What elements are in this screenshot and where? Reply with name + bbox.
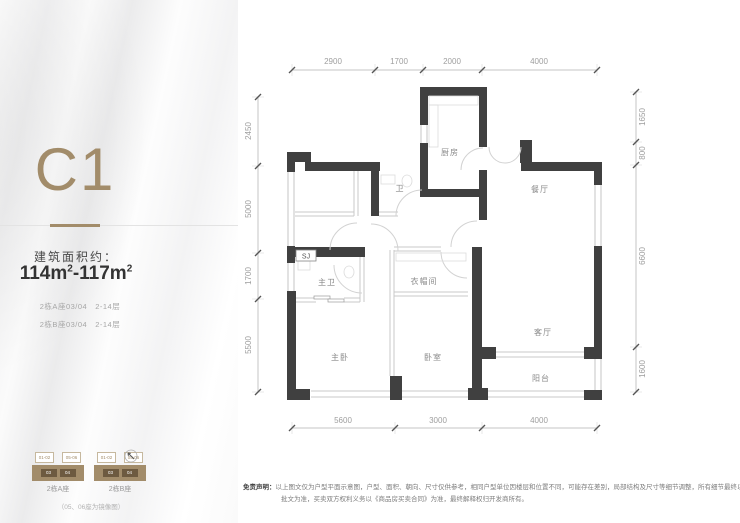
dim-right-4: 1600 [638, 360, 647, 378]
dim-right-1: 1650 [638, 108, 647, 126]
disclaimer-line-1: 免责声明：以上图文仅为户型平面示意图，户型、面积、朝向、尺寸仅供参考，相同户型单… [243, 482, 739, 494]
room-label-kitchen: 厨房 [441, 147, 459, 157]
page: C1 建筑面积约： 114m2-117m2 2栋A座03/04 2-14层 2栋… [0, 0, 740, 523]
dim-top-3: 2000 [443, 57, 461, 66]
disclaimer-text: 以上图文仅为户型平面示意图，户型、面积、朝向、尺寸仅供参考，相同户型单位因楼层和… [276, 484, 740, 491]
room-label-master-bedroom: 主卧 [331, 352, 349, 362]
dim-left-1: 2450 [244, 122, 253, 140]
room-label-living: 客厅 [534, 327, 552, 337]
shaft-box: SJ [296, 250, 316, 261]
dim-top-4: 4000 [530, 57, 548, 66]
room-label-bedroom: 卧室 [424, 352, 442, 362]
dim-right-3: 6600 [638, 247, 647, 265]
floor-plan: 2900 1700 2000 4000 5600 3000 4000 2450 … [0, 0, 740, 523]
dimension-labels: 2900 1700 2000 4000 5600 3000 4000 2450 … [244, 57, 647, 425]
dim-bottom-2: 3000 [429, 416, 447, 425]
dim-left-4: 5500 [244, 336, 253, 354]
shaft-label: SJ [302, 254, 310, 261]
sliding-door [314, 296, 344, 302]
disclaimer-title: 免责声明： [243, 484, 276, 491]
room-labels: 厨房 卫 餐厅 主卫 衣帽间 客厅 主卧 卧室 阳台 [318, 147, 552, 383]
thin-walls [295, 171, 468, 376]
room-label-master-bath: 主卫 [318, 277, 336, 287]
dim-bottom-3: 4000 [530, 416, 548, 425]
room-label-closet: 衣帽间 [411, 276, 438, 286]
dim-bottom-1: 5600 [334, 416, 352, 425]
disclaimer-line-2: 批文为准，买卖双方权利义务以《商品房买卖合同》为准，最终解释权归开发商所有。 [243, 494, 739, 506]
room-label-bath: 卫 [396, 184, 405, 193]
disclaimer: 免责声明：以上图文仅为户型平面示意图，户型、面积、朝向、尺寸仅供参考，相同户型单… [243, 482, 739, 506]
dim-left-2: 5000 [244, 200, 253, 218]
room-label-balcony: 阳台 [532, 373, 550, 383]
dim-right-2: 800 [638, 146, 647, 160]
dim-top-2: 1700 [390, 57, 408, 66]
room-label-dining: 餐厅 [531, 185, 549, 194]
dim-left-3: 1700 [244, 267, 253, 285]
dim-top-1: 2900 [324, 57, 342, 66]
